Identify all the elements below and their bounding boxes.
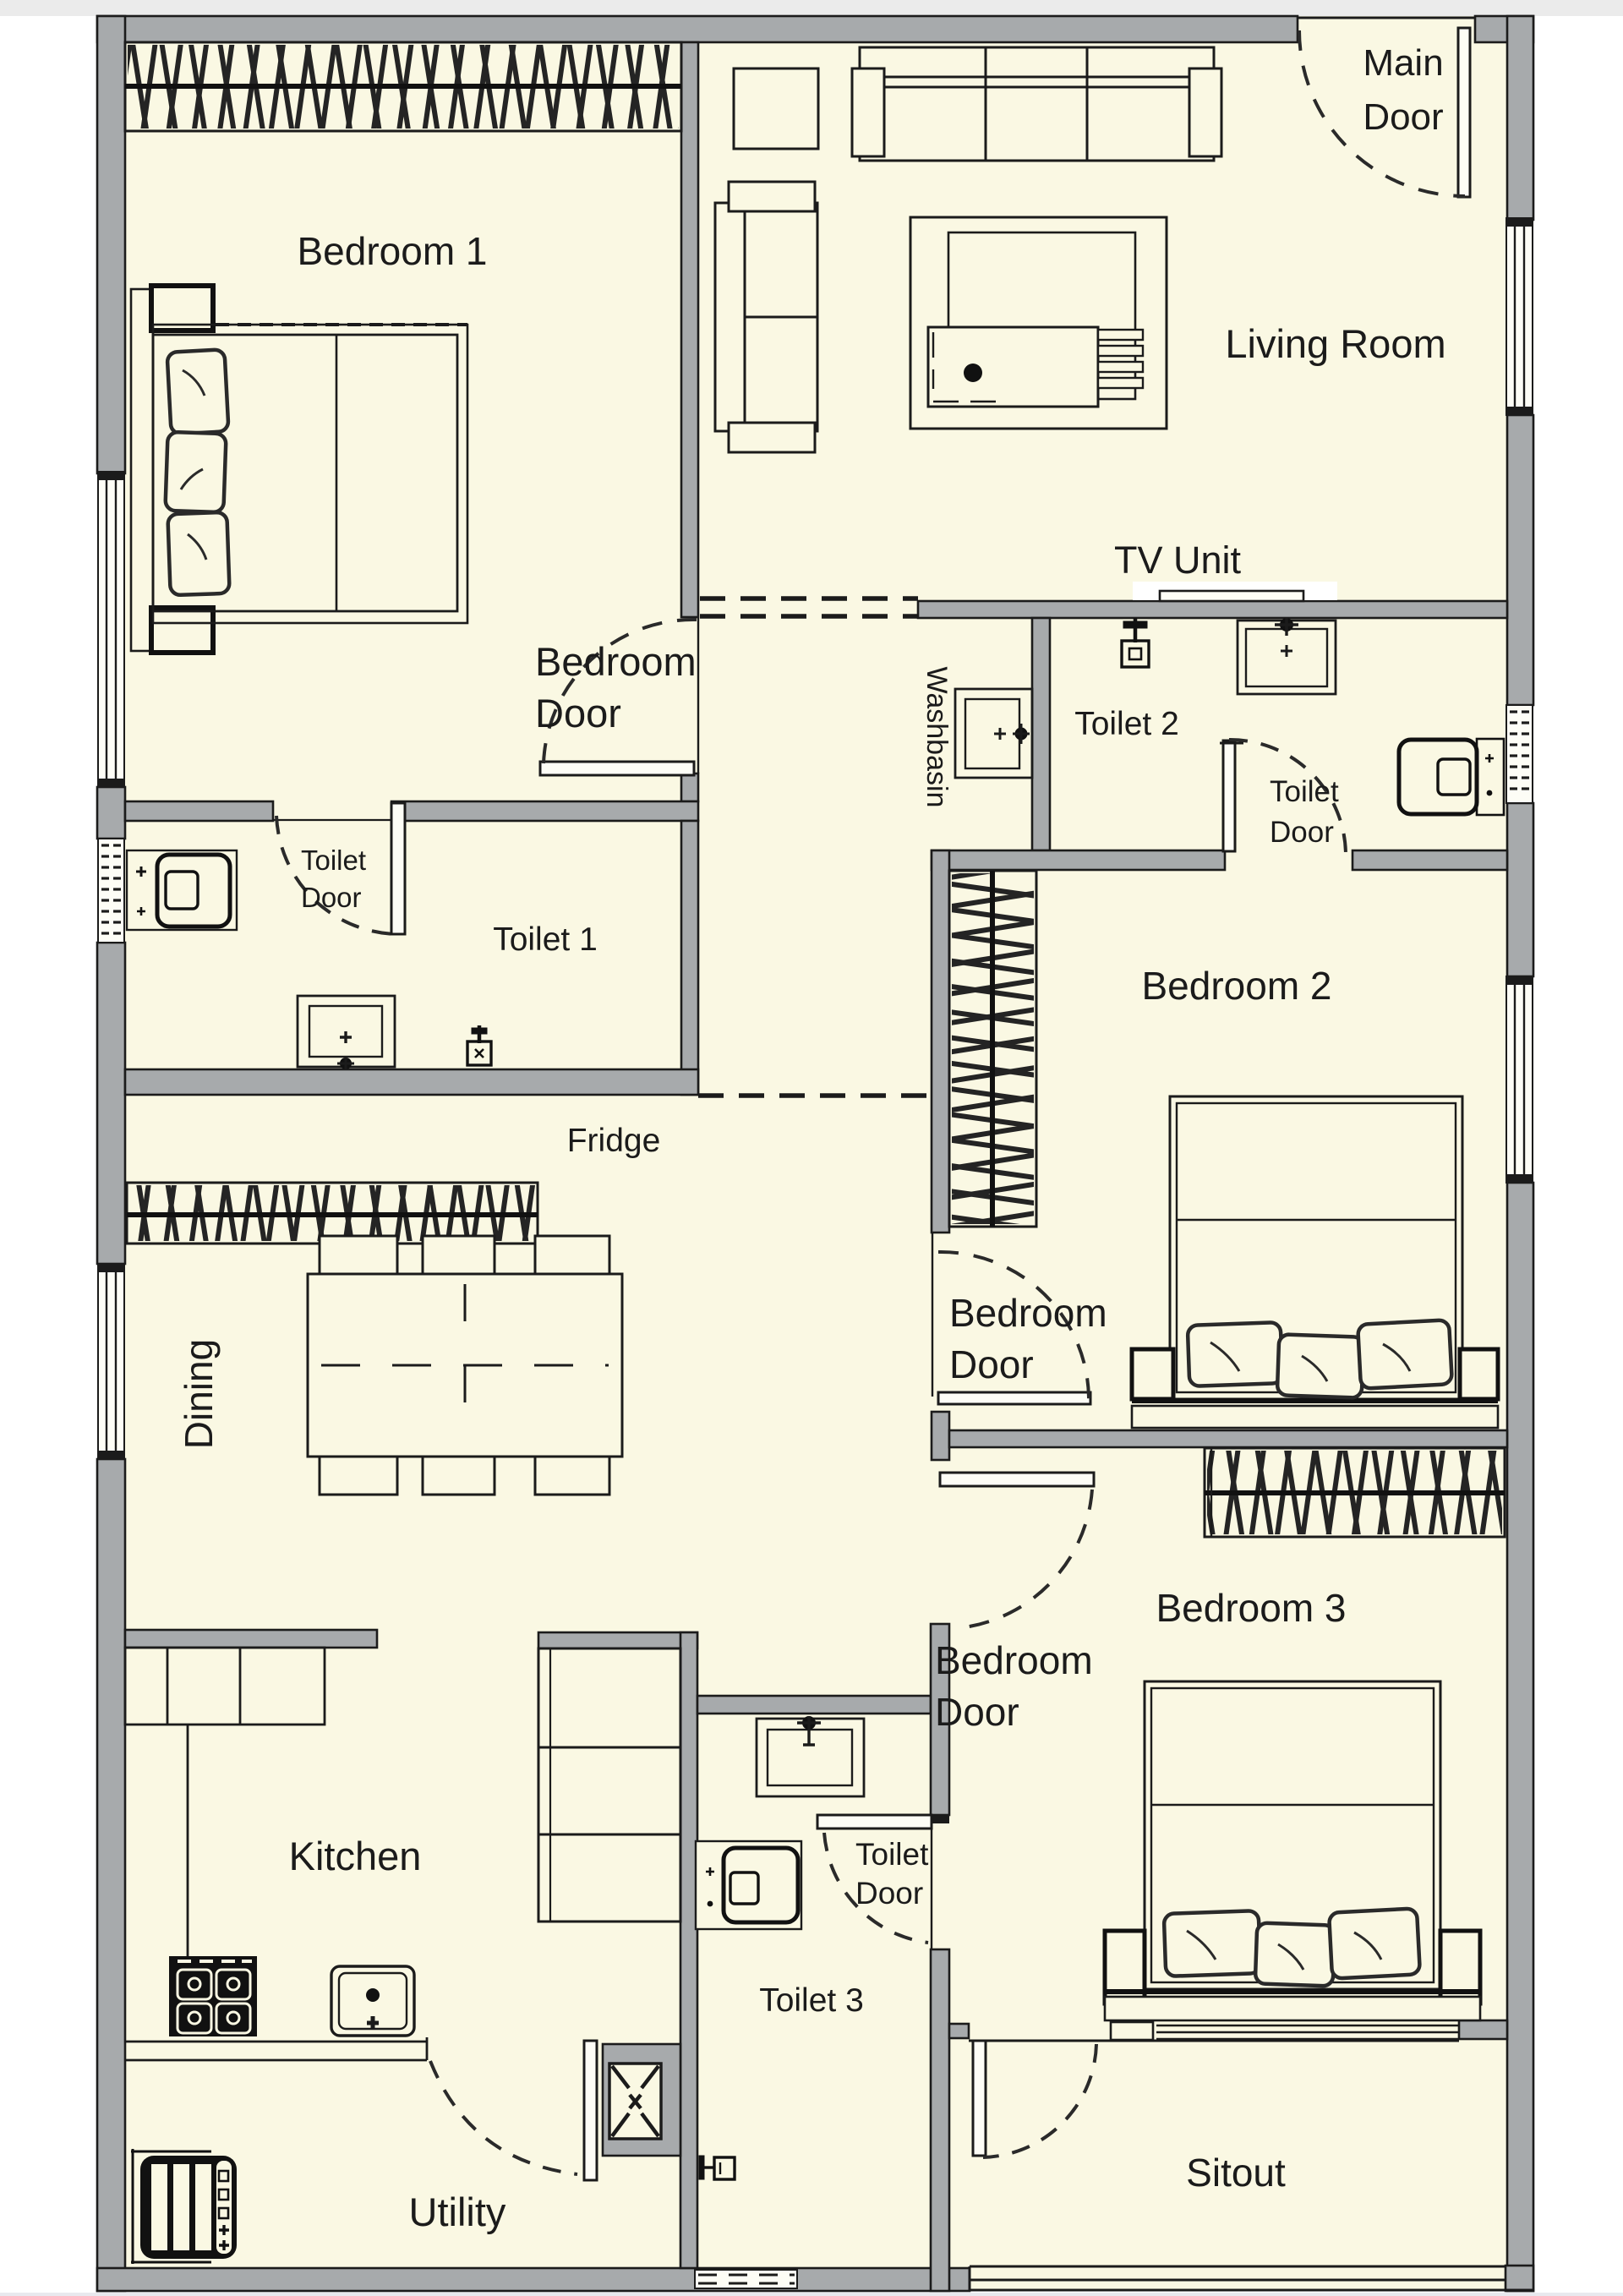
svg-text:Washbasin: Washbasin xyxy=(921,667,953,808)
svg-text:Fridge: Fridge xyxy=(567,1123,661,1159)
svg-text:Door: Door xyxy=(1270,816,1334,849)
svg-text:Sitout: Sitout xyxy=(1186,2151,1286,2195)
svg-text:TV Unit: TV Unit xyxy=(1114,538,1242,582)
svg-text:Door: Door xyxy=(1363,96,1443,138)
svg-text:Toilet 3: Toilet 3 xyxy=(759,1982,864,2019)
svg-text:Toilet: Toilet xyxy=(1270,775,1339,808)
svg-text:Door: Door xyxy=(535,691,621,735)
svg-text:Door: Door xyxy=(949,1342,1034,1386)
svg-text:Bedroom 1: Bedroom 1 xyxy=(297,229,487,273)
svg-text:Bedroom 3: Bedroom 3 xyxy=(1156,1586,1346,1630)
svg-text:Toilet 1: Toilet 1 xyxy=(493,921,598,958)
svg-text:Bedroom: Bedroom xyxy=(935,1638,1093,1682)
svg-text:Kitchen: Kitchen xyxy=(289,1834,422,1878)
svg-text:Bedroom 2: Bedroom 2 xyxy=(1141,964,1331,1008)
svg-text:Living Room: Living Room xyxy=(1225,321,1445,366)
svg-text:Door: Door xyxy=(301,882,362,913)
svg-text:Toilet: Toilet xyxy=(301,845,366,876)
svg-text:Toilet 2: Toilet 2 xyxy=(1074,706,1179,742)
svg-text:Door: Door xyxy=(855,1876,923,1911)
svg-text:Utility: Utility xyxy=(409,2189,506,2234)
svg-text:Bedroom: Bedroom xyxy=(535,639,697,684)
svg-text:Main: Main xyxy=(1363,42,1443,84)
svg-text:Dining: Dining xyxy=(177,1339,221,1449)
svg-text:Door: Door xyxy=(935,1690,1019,1734)
svg-text:Bedroom: Bedroom xyxy=(949,1291,1107,1335)
svg-text:Toilet: Toilet xyxy=(855,1837,929,1872)
